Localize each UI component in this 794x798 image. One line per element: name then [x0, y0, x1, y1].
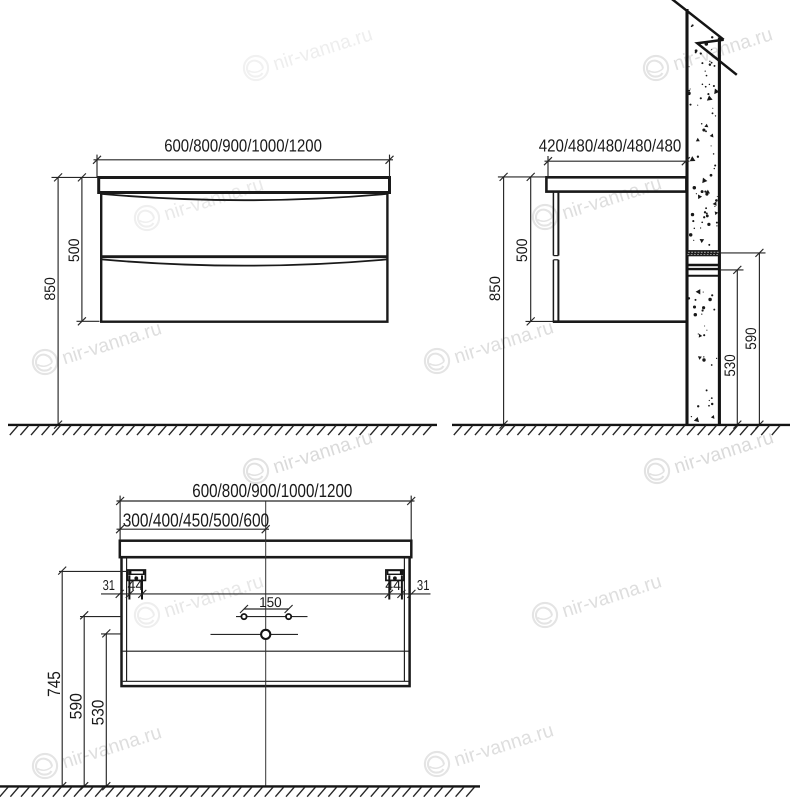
svg-text:300/400/450/500/600: 300/400/450/500/600 — [123, 510, 270, 531]
svg-text:31: 31 — [417, 578, 430, 594]
svg-text:44: 44 — [385, 578, 401, 594]
svg-text:745: 745 — [44, 671, 64, 697]
svg-text:530: 530 — [722, 354, 739, 376]
svg-text:590: 590 — [743, 327, 760, 349]
svg-text:420/480/480/480/480: 420/480/480/480/480 — [539, 135, 682, 155]
svg-text:850: 850 — [42, 277, 59, 301]
svg-text:150: 150 — [259, 595, 282, 611]
svg-text:600/800/900/1000/1200: 600/800/900/1000/1200 — [192, 480, 352, 501]
svg-text:44: 44 — [128, 578, 144, 594]
svg-text:31: 31 — [103, 578, 115, 594]
svg-text:530: 530 — [89, 700, 108, 726]
svg-text:500: 500 — [514, 239, 531, 263]
svg-text:590: 590 — [67, 693, 86, 719]
svg-text:850: 850 — [487, 276, 504, 301]
svg-text:500: 500 — [66, 239, 83, 263]
svg-text:600/800/900/1000/1200: 600/800/900/1000/1200 — [164, 135, 322, 155]
